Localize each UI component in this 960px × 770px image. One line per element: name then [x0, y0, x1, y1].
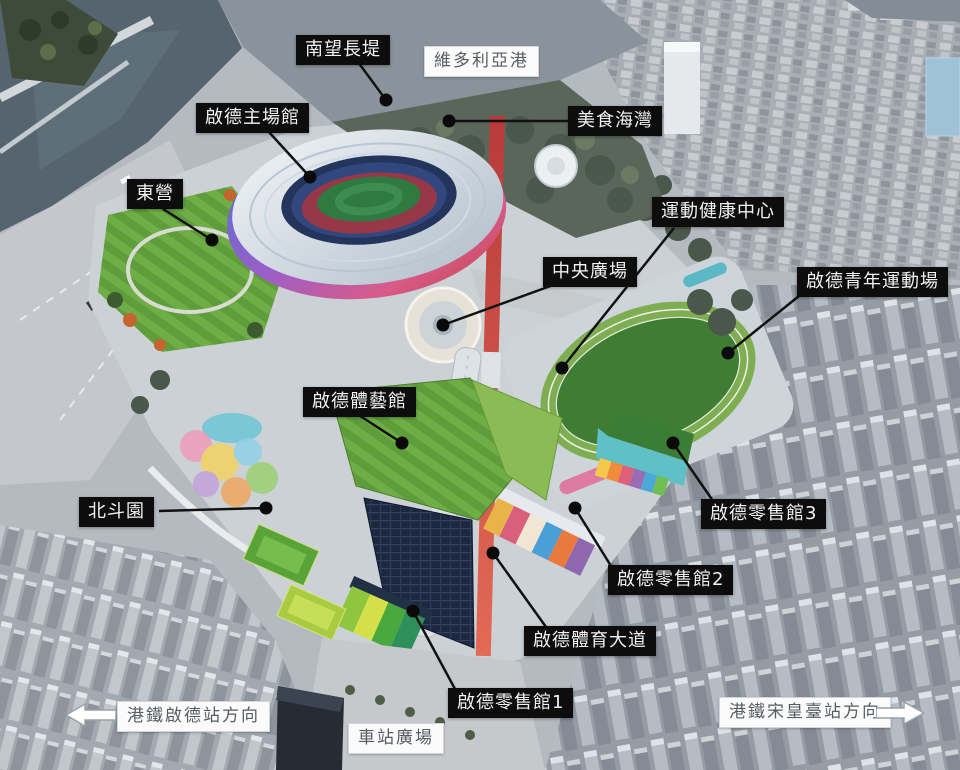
kai-tak-sports-park-annotated-map: 南望長堤 維多利亞港 啟德主場館 美食海灣 東營 運動健康中心 中央廣場 啟德青…	[0, 0, 960, 770]
label-food-bay: 美食海灣	[568, 106, 662, 136]
label-retail-hall-3: 啟德零售館3	[701, 499, 826, 529]
label-station-square: 車站廣場	[348, 723, 444, 754]
label-central-plaza: 中央廣場	[543, 257, 637, 287]
label-victoria-harbour: 維多利亞港	[424, 46, 539, 77]
label-retail-hall-2: 啟德零售館2	[608, 565, 733, 595]
label-retail-hall-1: 啟德零售館1	[448, 688, 573, 718]
label-sports-avenue: 啟德體育大道	[524, 626, 656, 656]
right-arrow-icon	[876, 700, 924, 726]
label-mtr-kai-tak-direction: 港鐵啟德站方向	[117, 701, 270, 732]
label-arena: 啟德體藝館	[303, 387, 416, 417]
label-health-centre: 運動健康中心	[652, 197, 784, 227]
label-main-stadium: 啟德主場館	[196, 103, 309, 133]
harbourfront-canopy	[535, 145, 577, 187]
aerial-render	[0, 0, 960, 770]
label-south-promenade: 南望長堤	[296, 35, 390, 65]
label-youth-sports-ground: 啟德青年運動場	[797, 267, 948, 297]
label-mtr-sung-wong-toi-direction: 港鐵宋皇臺站方向	[719, 697, 891, 728]
label-north-star-garden: 北斗園	[79, 497, 154, 527]
left-arrow-icon	[66, 702, 116, 728]
label-east-camp: 東營	[127, 179, 183, 209]
